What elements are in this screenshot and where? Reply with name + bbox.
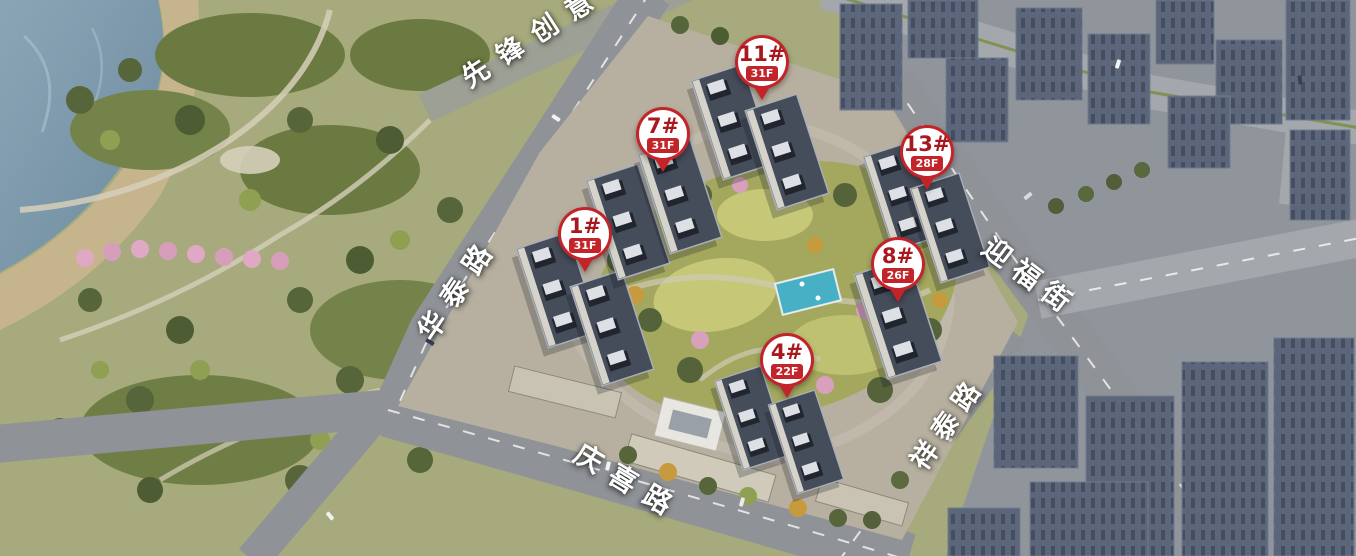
building-number: 13# <box>904 134 951 155</box>
building-pin-4[interactable]: 4# 22F <box>760 333 814 398</box>
building-pin-13[interactable]: 13# 28F <box>900 125 954 190</box>
aerial-scene-illustration <box>0 0 1356 556</box>
building-number: 8# <box>882 246 914 267</box>
building-floors-badge: 31F <box>569 238 602 253</box>
pin-head-circle: 7# 31F <box>636 107 690 161</box>
pin-head-circle: 11# 31F <box>735 35 789 89</box>
pin-head-circle: 4# 22F <box>760 333 814 387</box>
building-number: 4# <box>771 342 803 363</box>
building-floors-badge: 22F <box>771 364 804 379</box>
building-number: 11# <box>739 44 786 65</box>
pin-head-circle: 8# 26F <box>871 237 925 291</box>
building-number: 7# <box>647 116 679 137</box>
pin-head-circle: 1# 31F <box>558 207 612 261</box>
building-number: 1# <box>569 216 601 237</box>
building-pin-11[interactable]: 11# 31F <box>735 35 789 100</box>
building-pin-1[interactable]: 1# 31F <box>558 207 612 272</box>
building-floors-badge: 31F <box>746 66 779 81</box>
building-floors-badge: 28F <box>911 156 944 171</box>
building-pin-8[interactable]: 8# 26F <box>871 237 925 302</box>
building-pin-7[interactable]: 7# 31F <box>636 107 690 172</box>
building-floors-badge: 26F <box>882 268 915 283</box>
building-floors-badge: 31F <box>647 138 680 153</box>
masterplan-aerial-view: 先锋创意 华泰路 迎福街 祥泰路 庆喜路 1# 31F 7# 31F 11# 3… <box>0 0 1356 556</box>
pin-head-circle: 13# 28F <box>900 125 954 179</box>
